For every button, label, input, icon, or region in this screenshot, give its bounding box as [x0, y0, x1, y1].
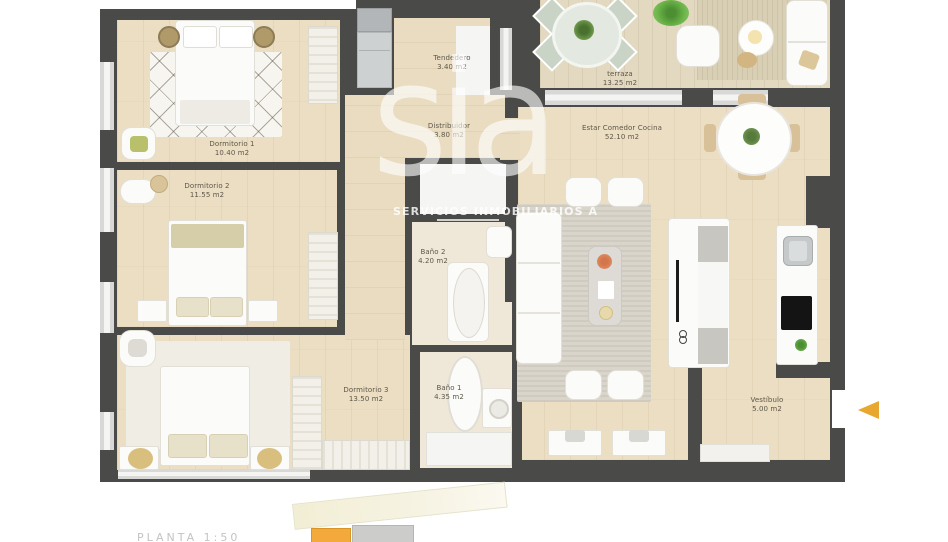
room-name: Baño 1 — [399, 384, 499, 393]
dormitorio2-nightstand-right — [248, 300, 278, 322]
dormitorio2-pillow-right — [210, 297, 243, 317]
room-label-dormitorio2: Dormitorio 2 11.55 m2 — [157, 182, 257, 199]
dormitorio2-blanket — [171, 224, 244, 248]
sofa-seam-1 — [518, 262, 560, 264]
room-label-bano1: Baño 1 4.35 m2 — [399, 384, 499, 401]
dormitorio2-wardrobe — [308, 232, 338, 320]
dormitorio1-pillow-left — [183, 26, 217, 48]
terraza-plant — [653, 0, 689, 26]
room-name: terraza — [570, 70, 670, 79]
island-faucet-icon-2 — [679, 336, 687, 344]
scale-label: PLANTA 1:50 — [137, 531, 240, 542]
room-area: 11.55 m2 — [157, 191, 257, 200]
keyplan-unit-highlight — [311, 528, 351, 542]
terraza-lamp — [748, 30, 762, 44]
coffee-table-flowers — [597, 254, 612, 269]
watermark-underline — [437, 219, 499, 221]
watermark-tagline: SERVICIOS INMOBILIARIOS A — [393, 205, 598, 218]
room-name: Estar Comedor Cocina — [572, 124, 672, 133]
room-area: 10.40 m2 — [182, 149, 282, 158]
dining-table-centerpiece — [743, 128, 760, 145]
terraza-sofa-seam — [788, 41, 826, 43]
entrance-door — [832, 390, 845, 428]
dormitorio3-pillow-right — [209, 434, 248, 458]
room-label-dormitorio1: Dormitorio 1 10.40 m2 — [182, 140, 282, 157]
dormitorio2-nightstand-left — [137, 300, 167, 322]
dormitorio3-round-rug-left — [128, 448, 153, 469]
terraza-table-plant — [574, 20, 594, 40]
kitchen-plant — [795, 339, 807, 351]
room-area: 5.00 m2 — [717, 405, 817, 414]
console-chair-1 — [565, 430, 585, 442]
island-edge-bar — [676, 260, 679, 322]
sofa-seam-2 — [518, 312, 560, 314]
dormitorio3-round-rug-right — [257, 448, 282, 469]
room-area: 4.35 m2 — [399, 393, 499, 402]
keyplan-building-outline — [292, 482, 508, 530]
island-segment-bottom — [698, 328, 728, 364]
kitchen-sink-basin — [789, 241, 807, 261]
terrace-slider-door-1 — [545, 90, 682, 105]
dormitorio1-blanket — [180, 100, 250, 124]
dormitorio1-pillow-right — [219, 26, 253, 48]
dormitorio1-armchair-cushion — [130, 136, 148, 152]
dormitorio3-armchair-cushion — [128, 339, 147, 357]
entrance-mat — [700, 444, 770, 462]
bano1-sink — [489, 399, 509, 419]
kitchen-cooktop — [781, 296, 812, 330]
dormitorio2-pillow-left — [176, 297, 209, 317]
salon-armchair-4 — [607, 370, 644, 400]
room-label-terraza: terraza 13.25 m2 — [570, 70, 670, 87]
room-area: 52.10 m2 — [572, 133, 672, 142]
dormitorio1-nightstand-left — [158, 26, 180, 48]
salon-sofa — [516, 212, 562, 364]
room-label-salon: Estar Comedor Cocina 52.10 m2 — [572, 124, 672, 141]
room-area: 13.25 m2 — [570, 79, 670, 88]
room-area: 4.20 m2 — [383, 257, 483, 266]
room-name: Dormitorio 1 — [182, 140, 282, 149]
bano2-toilet — [486, 226, 512, 258]
terraza-stool — [737, 52, 757, 68]
terraza-pouf — [676, 25, 720, 67]
room-name: Vestíbulo — [717, 396, 817, 405]
dining-chair-left — [704, 124, 716, 152]
entrance-arrow-icon — [858, 401, 879, 419]
top-margin — [100, 0, 356, 9]
coffee-table-candle — [599, 306, 613, 320]
keyplan-adjacent-unit — [352, 525, 414, 542]
salon-armchair-1 — [565, 177, 602, 207]
wall-stub-kitchen — [806, 176, 845, 228]
salon-armchair-3 — [565, 370, 602, 400]
dormitorio3-pillow-left — [168, 434, 207, 458]
floorplan-canvas: Dormitorio 1 10.40 m2 Dormitorio 2 11.55… — [0, 0, 948, 542]
room-label-bano2: Baño 2 4.20 m2 — [383, 248, 483, 265]
room-name: Dormitorio 2 — [157, 182, 257, 191]
watermark-logo: sia — [372, 40, 550, 200]
dormitorio1-wardrobe — [308, 26, 338, 104]
window-left-1 — [100, 62, 114, 130]
console-chair-2 — [629, 430, 649, 442]
island-segment-middle — [698, 262, 728, 328]
bano2-bathtub-basin — [453, 268, 485, 338]
salon-armchair-2 — [607, 177, 644, 207]
window-left-2 — [100, 168, 114, 232]
room-name: Baño 2 — [383, 248, 483, 257]
coffee-table-tray — [597, 280, 615, 300]
terraza-sofa — [786, 0, 828, 86]
island-segment-top — [698, 226, 728, 262]
bano1-shower — [426, 432, 512, 466]
dormitorio3-wardrobe-horizontal — [322, 440, 410, 470]
window-bottom — [118, 469, 310, 479]
window-left-3 — [100, 282, 114, 333]
dormitorio1-nightstand-right — [253, 26, 275, 48]
window-left-4 — [100, 412, 114, 450]
room-label-vestibulo: Vestíbulo 5.00 m2 — [717, 396, 817, 413]
